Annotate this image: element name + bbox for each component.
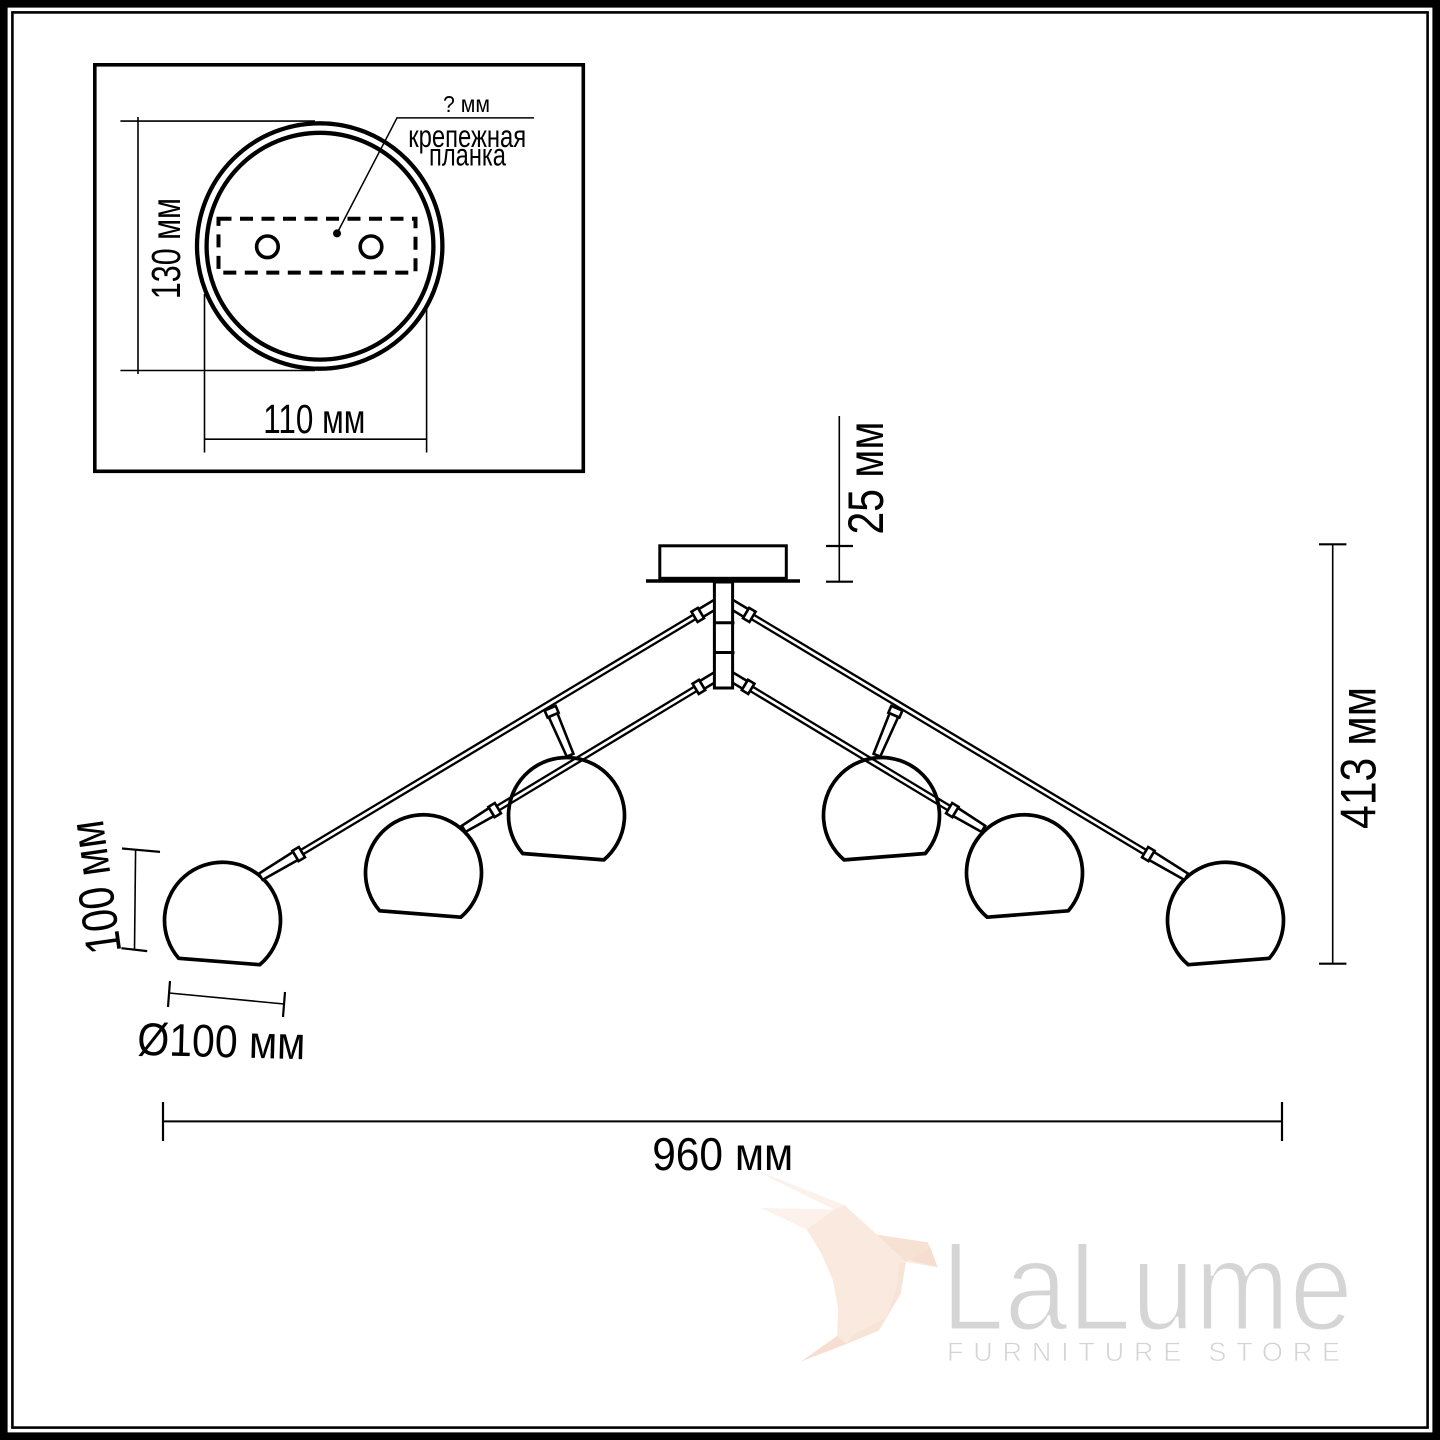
svg-text:FURNITURE STORE: FURNITURE STORE [947,1337,1340,1367]
svg-text:110 мм: 110 мм [263,396,365,442]
svg-text:25 мм: 25 мм [838,422,894,535]
svg-text:LaLume: LaLume [941,1215,1353,1357]
svg-text:Ø100 мм: Ø100 мм [137,1013,306,1069]
svg-text:413 мм: 413 мм [1331,687,1387,829]
svg-text:960 мм: 960 мм [652,1128,793,1180]
svg-text:130 мм: 130 мм [143,198,189,299]
svg-text:? мм: ? мм [443,91,490,117]
svg-text:планка: планка [429,137,506,173]
